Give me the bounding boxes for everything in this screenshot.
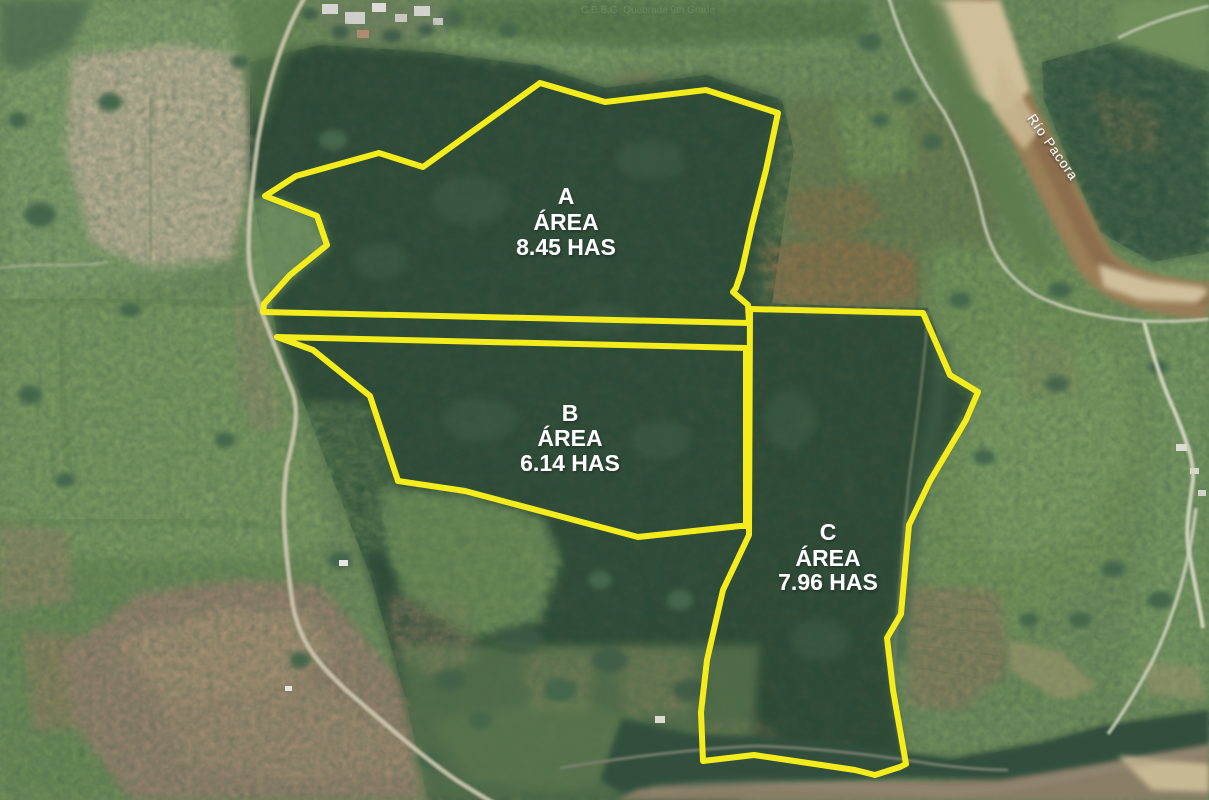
svg-text:B: B xyxy=(562,400,579,426)
svg-text:C: C xyxy=(820,519,837,545)
svg-text:ÁREA: ÁREA xyxy=(537,424,602,451)
svg-text:7.96 HAS: 7.96 HAS xyxy=(778,569,878,595)
svg-text:8.45 HAS: 8.45 HAS xyxy=(516,234,616,260)
svg-text:6.14 HAS: 6.14 HAS xyxy=(520,450,620,476)
svg-text:ÁREA: ÁREA xyxy=(533,208,598,235)
svg-text:A: A xyxy=(558,183,575,209)
svg-text:C.E.B.G. Quebrada 9th Grade: C.E.B.G. Quebrada 9th Grade xyxy=(581,5,715,16)
svg-text:ÁREA: ÁREA xyxy=(795,544,860,571)
